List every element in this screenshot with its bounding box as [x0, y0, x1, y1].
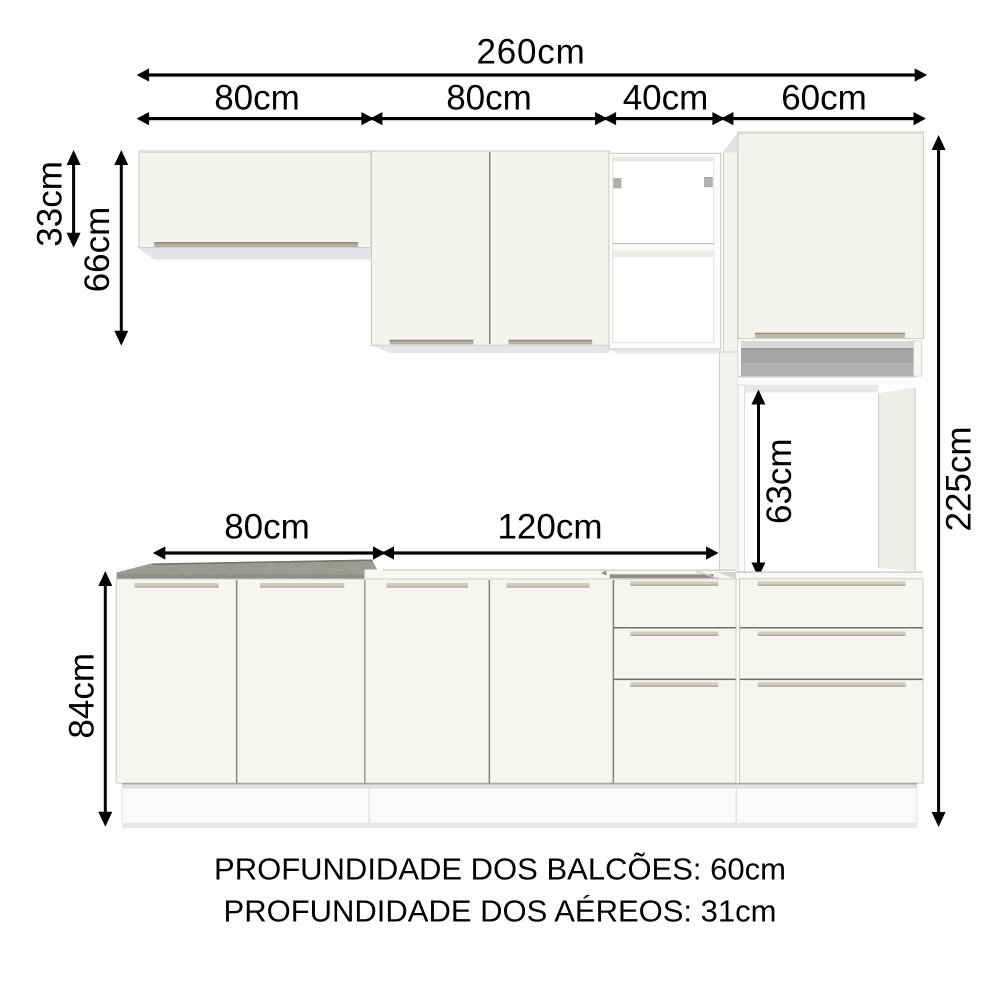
svg-text:120cm: 120cm	[497, 508, 602, 547]
svg-text:84cm: 84cm	[63, 653, 102, 739]
svg-text:40cm: 40cm	[623, 79, 709, 118]
svg-text:80cm: 80cm	[224, 508, 310, 547]
svg-text:260cm: 260cm	[476, 33, 585, 72]
svg-text:80cm: 80cm	[214, 79, 300, 118]
svg-text:PROFUNDIDADE DOS BALCÕES: 60cm: PROFUNDIDADE DOS BALCÕES: 60cm	[214, 852, 786, 887]
svg-text:225cm: 225cm	[939, 426, 978, 531]
svg-text:63cm: 63cm	[760, 438, 799, 524]
svg-text:66cm: 66cm	[78, 207, 117, 293]
svg-text:80cm: 80cm	[446, 79, 532, 118]
svg-text:PROFUNDIDADE DOS AÉREOS: 31cm: PROFUNDIDADE DOS AÉREOS: 31cm	[224, 894, 777, 929]
svg-text:60cm: 60cm	[781, 79, 867, 118]
svg-text:33cm: 33cm	[31, 161, 70, 247]
